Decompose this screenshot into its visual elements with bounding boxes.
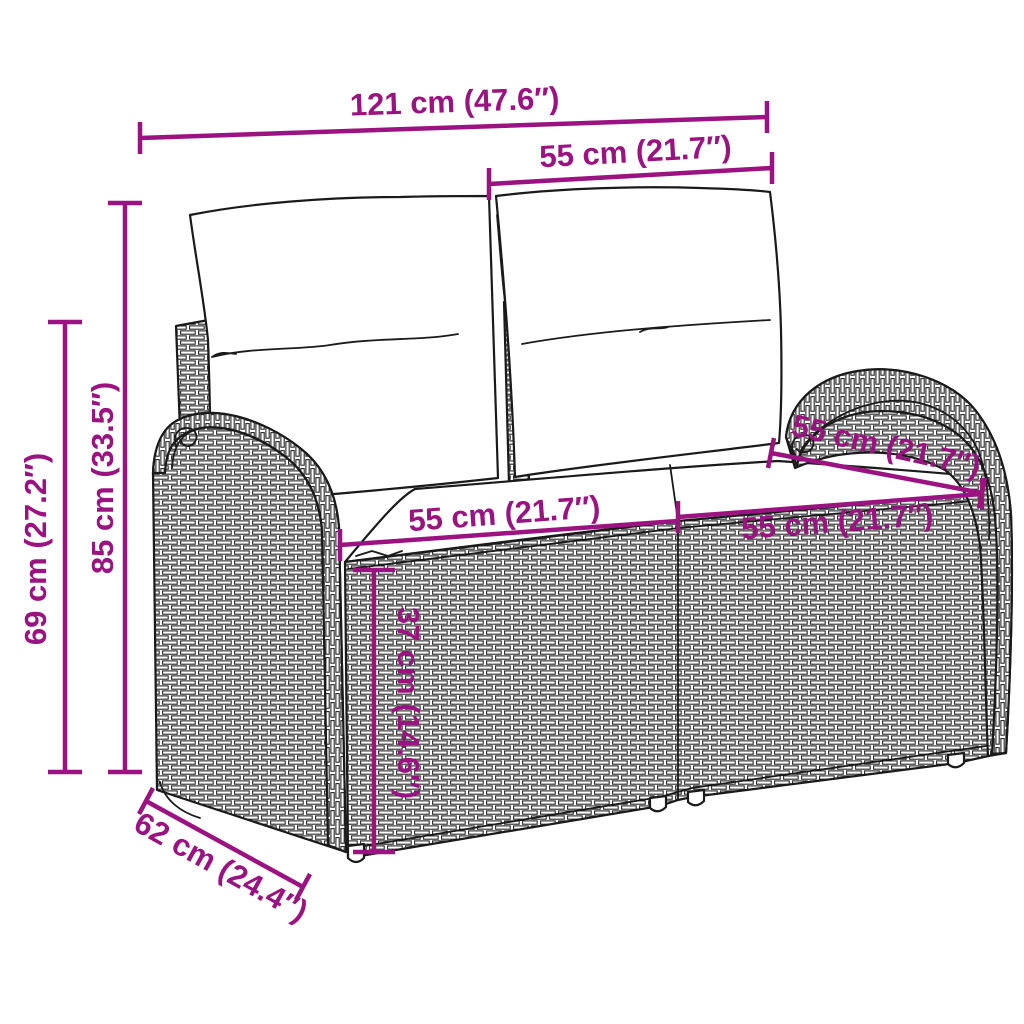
dimension-diagram-page: 121 cm (47.6″) 55 cm (21.7″) 85 cm (33.5… [0, 0, 1024, 1024]
dim-seat-height-label: 37 cm (14.6″) [391, 607, 426, 799]
dimension-diagram: 121 cm (47.6″) 55 cm (21.7″) 85 cm (33.5… [0, 0, 1024, 1024]
left-armrest [153, 413, 346, 852]
dim-armrest-height-label: 69 cm (27.2″) [18, 453, 53, 645]
dim-total-height: 85 cm (33.5″) [85, 203, 142, 772]
dim-back-cushion-width-label: 55 cm (21.7″) [538, 129, 732, 175]
dim-total-height-label: 85 cm (33.5″) [85, 382, 120, 574]
back-cushion-right [496, 187, 781, 477]
dim-armrest-height-line [48, 322, 82, 772]
dim-total-width-label: 121 cm (47.6″) [349, 80, 560, 122]
dim-armrest-height: 69 cm (27.2″) [18, 322, 82, 772]
